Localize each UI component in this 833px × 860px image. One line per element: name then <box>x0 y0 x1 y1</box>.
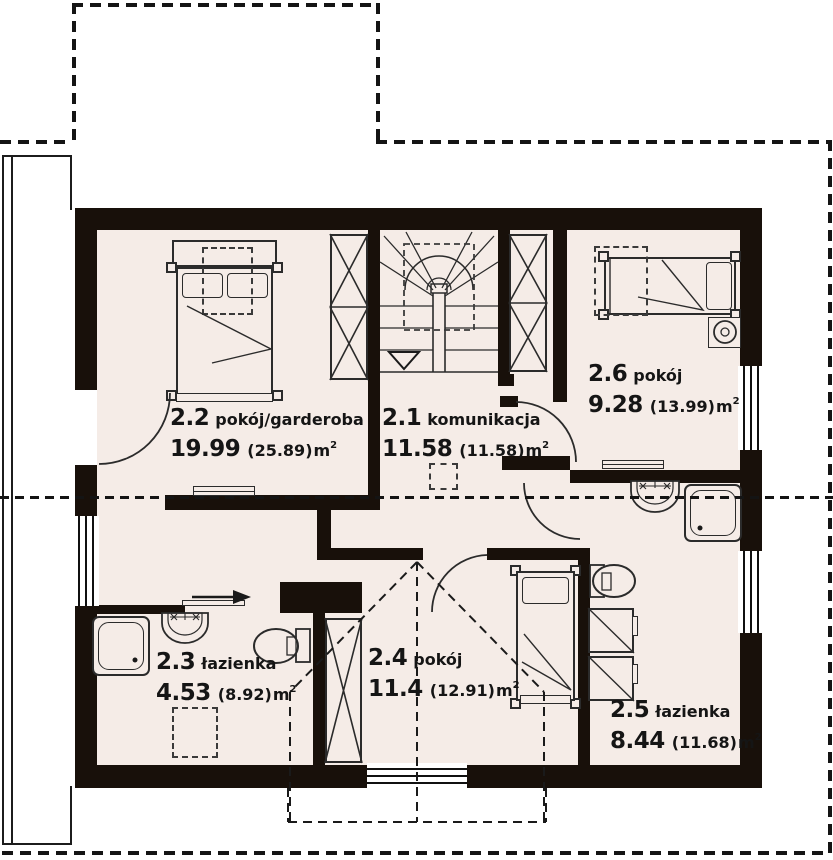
eaves-line <box>70 155 72 210</box>
window-bottom <box>367 763 467 788</box>
interior-wall-2-4-top <box>487 548 587 560</box>
exterior-wall-left <box>75 465 97 518</box>
room-area-unit: m2 <box>716 397 740 416</box>
eaves-line <box>70 786 72 845</box>
skylight-outline <box>172 707 218 758</box>
room-label-2-2: 2.2pokój/garderoba 19.99(25.89)m2 <box>170 404 364 465</box>
chimney <box>280 582 362 613</box>
interior-wall-2-4-top <box>317 548 423 560</box>
skylight-outline <box>594 246 648 316</box>
interior-wall-stair-left <box>368 230 380 510</box>
roof-outline-left-upper <box>72 3 76 144</box>
room-number: 2.6 <box>588 361 627 387</box>
skylight-outline <box>429 463 458 490</box>
eaves-line <box>2 155 4 845</box>
room-name: łazienka <box>655 702 730 721</box>
interior-wall-2-6-left <box>553 230 567 402</box>
bed-post <box>730 251 741 262</box>
roof-outline-top <box>72 3 378 7</box>
room-area: 19.99 <box>170 436 240 462</box>
window-right-upper <box>738 366 764 450</box>
pillow <box>522 577 569 604</box>
room-label-2-3: 2.3łazienka 4.53(8.92)m2 <box>156 648 297 709</box>
room-area-unit: m2 <box>526 441 550 460</box>
exterior-wall-right <box>740 450 762 553</box>
room-number: 2.4 <box>368 645 407 671</box>
room-area-gross: (12.91) <box>430 681 495 700</box>
eaves-line <box>2 155 72 157</box>
floor-plan: 2.2pokój/garderoba 19.99(25.89)m2 2.1kom… <box>0 0 833 860</box>
room-area: 9.28 <box>588 392 643 418</box>
room-area: 11.58 <box>382 436 452 462</box>
room-number: 2.3 <box>156 649 195 675</box>
pillow <box>706 262 732 310</box>
radiator <box>602 460 664 469</box>
room-label-2-5: 2.5łazienka 8.44(11.68)m2 <box>610 696 762 757</box>
roof-outline-mid <box>376 3 380 144</box>
room-area: 8.44 <box>610 728 665 754</box>
washing-machine <box>588 608 634 653</box>
interior-wall-2-5-top <box>582 470 762 483</box>
window-left <box>73 516 99 606</box>
wardrobe <box>330 234 368 380</box>
single-bed-foot <box>520 695 571 704</box>
shower-tray-inner <box>98 622 144 670</box>
roof-outline-upper-left <box>0 140 72 144</box>
exterior-wall-top <box>75 208 762 230</box>
room-area: 11.4 <box>368 676 423 702</box>
room-area-gross: (11.68) <box>672 733 737 752</box>
exterior-wall-bottom <box>467 765 762 788</box>
skylight-outline <box>202 247 253 315</box>
bed-post <box>272 262 283 273</box>
room-area-unit: m2 <box>496 681 520 700</box>
interior-wall-2-3-top <box>97 605 185 614</box>
wardrobe <box>509 234 547 372</box>
interior-wall-2-3-2-4 <box>313 613 325 765</box>
exterior-wall-bottom <box>75 765 367 788</box>
exterior-wall-left <box>75 230 97 390</box>
room-number: 2.1 <box>382 405 421 431</box>
room-name: komunikacja <box>427 410 540 429</box>
washing-machine-handle <box>632 616 638 636</box>
room-label-2-6: 2.6pokój 9.28(13.99)m2 <box>588 360 740 421</box>
radiator <box>193 486 255 496</box>
room-area-unit: m2 <box>273 685 297 704</box>
eaves-line <box>2 843 72 845</box>
roof-outline-bottom <box>2 851 830 855</box>
room-number: 2.5 <box>610 697 649 723</box>
plant-stand <box>708 317 741 348</box>
room-label-2-1: 2.1komunikacja 11.58(11.58)m2 <box>382 404 549 465</box>
room-area-gross: (8.92) <box>218 685 272 704</box>
eaves-line <box>11 155 13 845</box>
room-label-2-4: 2.4pokój 11.4(12.91)m2 <box>368 644 520 705</box>
room-number: 2.2 <box>170 405 209 431</box>
washing-machine <box>588 656 634 701</box>
washing-machine-handle <box>632 664 638 684</box>
wardrobe <box>325 618 362 763</box>
roof-outline-upper-right <box>376 140 832 144</box>
double-bed-foot <box>176 393 273 402</box>
bed-post <box>272 390 283 401</box>
interior-wall-cap <box>498 374 514 386</box>
room-name: pokój <box>413 650 462 669</box>
room-name: łazienka <box>201 654 276 673</box>
interior-wall-stub <box>570 470 582 483</box>
room-area: 4.53 <box>156 680 211 706</box>
room-area-unit: m2 <box>738 733 762 752</box>
room-area-unit: m2 <box>314 441 338 460</box>
exterior-wall-right <box>740 230 762 368</box>
section-line <box>0 496 833 499</box>
room-area-gross: (25.89) <box>247 441 312 460</box>
room-name: pokój <box>633 366 682 385</box>
window-right-lower <box>738 551 764 633</box>
room-name: pokój/garderoba <box>215 410 364 429</box>
room-area-gross: (13.99) <box>650 397 715 416</box>
sliding-door-leaf <box>182 600 245 606</box>
room-area-gross: (11.58) <box>459 441 524 460</box>
